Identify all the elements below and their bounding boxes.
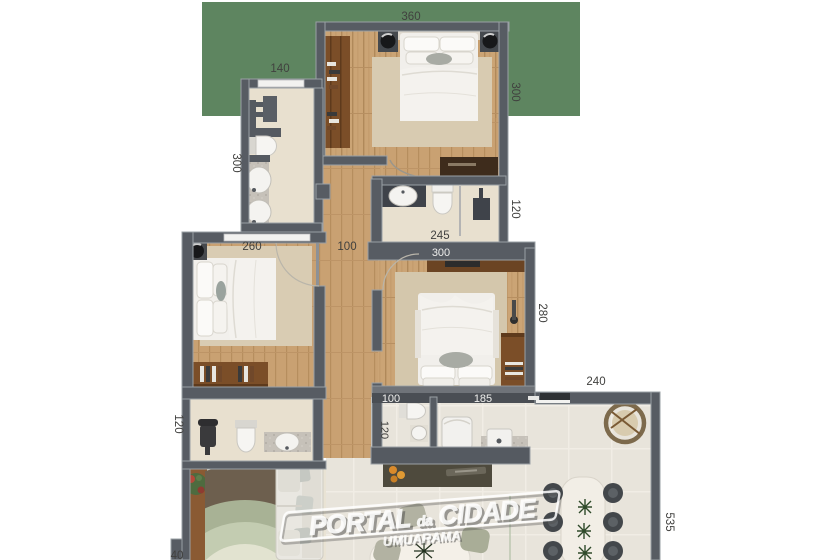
svg-text:300: 300 bbox=[509, 82, 521, 101]
svg-text:245: 245 bbox=[430, 230, 449, 242]
svg-text:300: 300 bbox=[230, 153, 242, 172]
svg-text:280: 280 bbox=[536, 303, 548, 322]
svg-text:185: 185 bbox=[474, 393, 492, 405]
svg-text:240: 240 bbox=[586, 376, 605, 388]
svg-text:360: 360 bbox=[401, 11, 420, 23]
svg-text:535: 535 bbox=[663, 512, 675, 531]
svg-text:260: 260 bbox=[242, 241, 261, 253]
svg-text:300: 300 bbox=[432, 247, 450, 259]
svg-text:100: 100 bbox=[337, 241, 356, 253]
svg-text:140: 140 bbox=[270, 63, 289, 75]
svg-text:120: 120 bbox=[378, 421, 390, 439]
svg-text:40: 40 bbox=[171, 550, 184, 560]
svg-text:120: 120 bbox=[509, 199, 521, 218]
svg-text:120: 120 bbox=[172, 414, 184, 433]
svg-text:100: 100 bbox=[382, 393, 400, 405]
